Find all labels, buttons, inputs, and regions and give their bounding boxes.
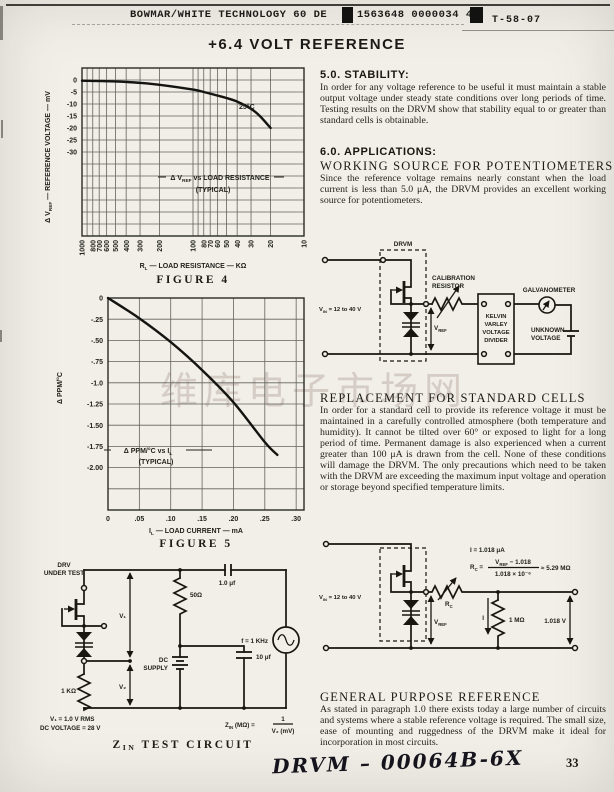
barcode-block-icon [342, 7, 353, 23]
svg-text:.05: .05 [134, 516, 144, 523]
output-terminal [424, 302, 429, 307]
svg-text:500: 500 [113, 240, 120, 252]
svg-text:-2.00: -2.00 [87, 465, 103, 472]
kelvin-label-4: DIVIDER [484, 338, 508, 344]
junction-dot [409, 352, 413, 356]
general-body: As stated in paragraph 1.0 there exists … [320, 704, 606, 748]
junction-dot [128, 659, 132, 663]
drvm-label: DRVM [394, 241, 412, 248]
barcode-block-icon [470, 7, 483, 23]
junction-dot [242, 706, 246, 710]
resistor-50-label: 50Ω [190, 592, 202, 599]
svg-text:-20: -20 [67, 126, 77, 133]
jfet-symbol [392, 281, 404, 303]
datasheet-page: BOWMAR/WHITE TECHNOLOGY 60 DE 1563648 00… [0, 0, 614, 792]
zin-test-circuit: DRV UNDER TEST 1 KΩ V₁ V₂ 50Ω DC SUPPLY … [20, 556, 312, 792]
rc-equation-numerator: VREF − 1.018 [495, 559, 531, 567]
svg-text:-1.75: -1.75 [87, 444, 103, 451]
svg-text:(TYPICAL): (TYPICAL) [139, 459, 174, 466]
svg-text:-15: -15 [67, 114, 77, 121]
svg-text:Δ VREF — REFERENCE VOLTAGE — m: Δ VREF — REFERENCE VOLTAGE — mV [45, 91, 54, 223]
galvanometer-symbol [539, 297, 555, 313]
dut-label-2: UNDER TEST [44, 570, 84, 577]
svg-text:FIGURE 5: FIGURE 5 [159, 538, 232, 550]
figure4-chart: 0-5-10-15-20-25-301000800700600500400300… [20, 62, 312, 288]
vref-label: VREF [434, 325, 447, 333]
svg-text:0: 0 [99, 296, 103, 303]
general-heading: GENERAL PURPOSE REFERENCE [320, 690, 541, 705]
scan-margin-mark [0, 6, 3, 40]
input-terminal [324, 646, 329, 651]
scan-edge-line [6, 4, 610, 6]
jfet-symbol [392, 565, 404, 587]
svg-text:.10: .10 [166, 516, 176, 523]
wires [326, 544, 572, 648]
capacitor-symbol [225, 564, 231, 576]
output-terminal [573, 590, 578, 595]
svg-text:-10: -10 [67, 102, 77, 109]
tap-terminal [102, 624, 107, 629]
capacitor-symbol [236, 652, 252, 658]
drvm-outline [380, 250, 426, 361]
frequency-label: f = 1 KHz [241, 638, 268, 645]
dut-terminal [82, 659, 87, 664]
junction-dot [82, 624, 86, 628]
doc-ref: T-58-07 [492, 15, 541, 26]
dc-supply-label-2: SUPPLY [143, 665, 168, 672]
resistor-1k-label: 1 KΩ [61, 688, 76, 695]
svg-text:IL — LOAD CURRENT — mA: IL — LOAD CURRENT — mA [149, 528, 243, 537]
load-resistor-label: 1 MΩ [509, 617, 525, 624]
scan-margin-mark [1, 120, 3, 138]
svg-text:FIGURE 4: FIGURE 4 [156, 274, 229, 286]
company-name: BOWMAR/WHITE TECHNOLOGY 60 DE [130, 9, 327, 21]
svg-text:.20: .20 [229, 516, 239, 523]
terminal [506, 352, 511, 357]
svg-text:-30: -30 [67, 150, 77, 157]
svg-text:200: 200 [157, 240, 164, 252]
svg-text:0: 0 [73, 78, 77, 85]
svg-text:0: 0 [106, 516, 110, 523]
terminal [506, 302, 511, 307]
v2-label: V₂ [119, 684, 126, 691]
replacement-heading: REPLACEMENT FOR STANDARD CELLS [320, 391, 586, 406]
svg-text:50: 50 [224, 240, 231, 248]
svg-text:.30: .30 [291, 516, 301, 523]
junction-dot [178, 568, 182, 572]
header-underline [462, 30, 614, 31]
svg-text:60: 60 [215, 240, 222, 248]
kelvin-label-3: VOLTAGE [482, 330, 509, 336]
kelvin-label-1: KELVIN [486, 314, 507, 320]
svg-text:700: 700 [97, 240, 104, 252]
svg-text:RL — LOAD RESISTANCE — KΩ: RL — LOAD RESISTANCE — KΩ [140, 263, 247, 272]
applications-body: Since the reference voltage remains near… [320, 173, 606, 206]
figure5-chart: 0-.25-.50-.75-1.0-1.25-1.50-1.75-2.000.0… [20, 288, 312, 552]
input-terminal [323, 352, 328, 357]
vin-label: VIN = 12 to 40 V [319, 595, 361, 602]
zin-formula-lhs: ZIN (MΩ) = [225, 722, 255, 730]
general-reference-circuit: VIN = 12 to 40 V VREF RC I = 1.018 μA RC… [318, 538, 614, 690]
junction-dot [178, 706, 182, 710]
svg-text:10: 10 [302, 240, 309, 248]
svg-text:40: 40 [235, 240, 242, 248]
junction-dot [496, 646, 500, 650]
dut-label-1: DRV [57, 562, 71, 569]
rc-label: RC [445, 601, 453, 609]
svg-text:(TYPICAL): (TYPICAL) [196, 187, 231, 194]
rc-equation-denominator: 1.018 × 10⁻⁶ [495, 571, 531, 578]
svg-text:-1.0: -1.0 [91, 380, 103, 387]
zin-circuit-caption: ZIN TEST CIRCUIT [113, 739, 254, 752]
junction-dot [409, 590, 413, 594]
galvanometer-label: GALVANOMETER [523, 287, 576, 294]
svg-text:70: 70 [208, 240, 215, 248]
capacitor-10uf-label: 10 μf [256, 654, 272, 661]
svg-text:Δ PPM/°C: Δ PPM/°C [56, 372, 64, 404]
drvm-outline [380, 548, 426, 641]
calibration-arrow [437, 286, 459, 318]
svg-text:-5: -5 [71, 90, 77, 97]
svg-text:25°C: 25°C [239, 103, 255, 111]
calibration-label-2: RESISTOR [432, 283, 465, 290]
battery-symbol [172, 657, 188, 669]
v1-label: V₁ [119, 613, 126, 620]
svg-text:-.75: -.75 [91, 359, 103, 366]
svg-text:-1.50: -1.50 [87, 423, 103, 430]
battery-symbol [563, 331, 579, 336]
svg-text:100: 100 [191, 240, 198, 252]
svg-text:300: 300 [138, 240, 145, 252]
header-underline [72, 24, 464, 25]
applications-heading: 6.0. APPLICATIONS: [320, 146, 437, 158]
junction-dot [409, 646, 413, 650]
dut-terminal [82, 586, 87, 591]
applications-subheading: WORKING SOURCE FOR POTENTIOMETERS [320, 159, 613, 174]
code-number: 1563648 0000034 4 [357, 9, 473, 21]
vin-label: VIN = 12 to 40 V [319, 307, 361, 314]
input-terminal [324, 542, 329, 547]
output-terminal [573, 646, 578, 651]
capacitor-1uf-label: 1.0 μf [219, 580, 236, 587]
svg-text:-25: -25 [67, 138, 77, 145]
vref-label: VREF [434, 619, 447, 627]
junction-dot [178, 644, 182, 648]
input-terminal [323, 258, 328, 263]
calibration-label-1: CALIBRATION [432, 275, 475, 282]
svg-text:30: 30 [249, 240, 256, 248]
junction-dot [409, 302, 413, 306]
terminal [482, 302, 487, 307]
svg-text:-1.25: -1.25 [87, 402, 103, 409]
kelvin-label-2: VARLEY [484, 322, 507, 328]
jfet-symbol [64, 599, 76, 620]
junction-dot [496, 590, 500, 594]
terminal [424, 590, 429, 595]
svg-text:600: 600 [104, 240, 111, 252]
current-equation: I = 1.018 μA [470, 547, 505, 554]
terminal [381, 258, 386, 263]
unknown-voltage-label-1: UNKNOWN [531, 327, 565, 334]
replacement-body: In order for a standard cell to provide … [320, 405, 606, 493]
dc-voltage-note: DC VOLTAGE = 28 V [40, 725, 101, 732]
rc-equation-result: ≈ 5.29 MΩ [541, 565, 571, 572]
zin-formula-denominator: V₂ (mV) [272, 728, 295, 735]
potentiometer-source-circuit: DRVM VIN = 12 to 40 V VREF CALIBRATION R… [318, 228, 614, 394]
svg-text:1000: 1000 [80, 240, 87, 256]
svg-text:.25: .25 [260, 516, 270, 523]
stability-body: In order for any voltage reference to be… [320, 82, 606, 126]
zin-formula-numerator: 1 [281, 716, 285, 723]
terminal [482, 352, 487, 357]
scan-margin-mark [0, 330, 2, 342]
output-voltage-label: 1.018 V [544, 618, 567, 625]
ac-source-symbol [273, 627, 299, 653]
svg-text:Δ PPM/°C vs IL: Δ PPM/°C vs IL [124, 447, 173, 457]
unknown-voltage-label-2: VOLTAGE [531, 335, 561, 342]
stability-heading: 5.0. STABILITY: [320, 69, 409, 81]
current-label: I [482, 615, 484, 622]
dc-supply-label-1: DC [159, 657, 169, 664]
page-number: 33 [566, 756, 579, 771]
svg-text:-.25: -.25 [91, 317, 103, 324]
v1-note: V₁ = 1.0 V RMS [50, 716, 94, 723]
svg-text:20: 20 [268, 240, 275, 248]
svg-text:400: 400 [124, 240, 131, 252]
rc-equation-lhs: RC = [470, 564, 483, 572]
svg-text:-.50: -.50 [91, 338, 103, 345]
page-title: +6.4 VOLT REFERENCE [0, 36, 614, 53]
svg-text:.15: .15 [197, 516, 207, 523]
